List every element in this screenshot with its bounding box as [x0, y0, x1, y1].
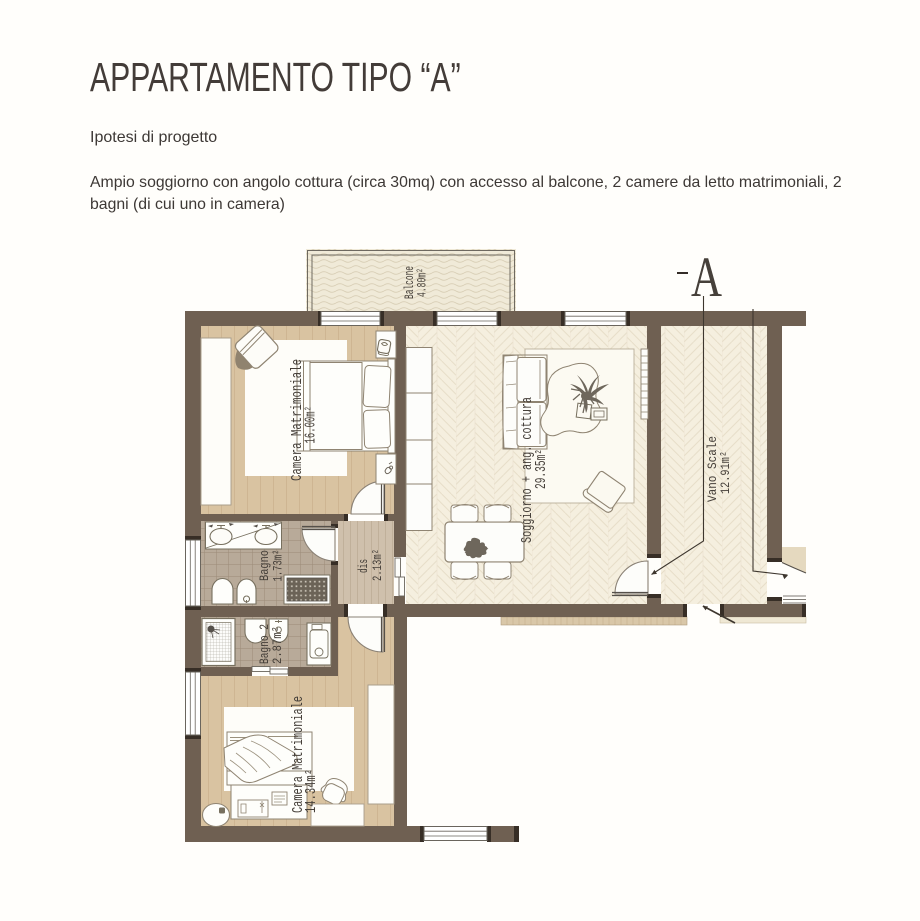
svg-text:2.13m²: 2.13m² — [370, 549, 385, 581]
svg-text:14.34m²: 14.34m² — [304, 769, 320, 813]
svg-text:A: A — [691, 246, 722, 309]
svg-text:16.00m²: 16.00m² — [304, 406, 320, 444]
svg-text:1.73m²: 1.73m² — [271, 550, 286, 582]
svg-text:29.35m²: 29.35m² — [534, 449, 550, 489]
svg-text:dis: dis — [356, 559, 371, 573]
svg-text:12.91m²: 12.91m² — [718, 451, 733, 494]
svg-text:4.80m²: 4.80m² — [415, 268, 430, 297]
svg-text:2.87m²: 2.87m² — [270, 626, 285, 664]
